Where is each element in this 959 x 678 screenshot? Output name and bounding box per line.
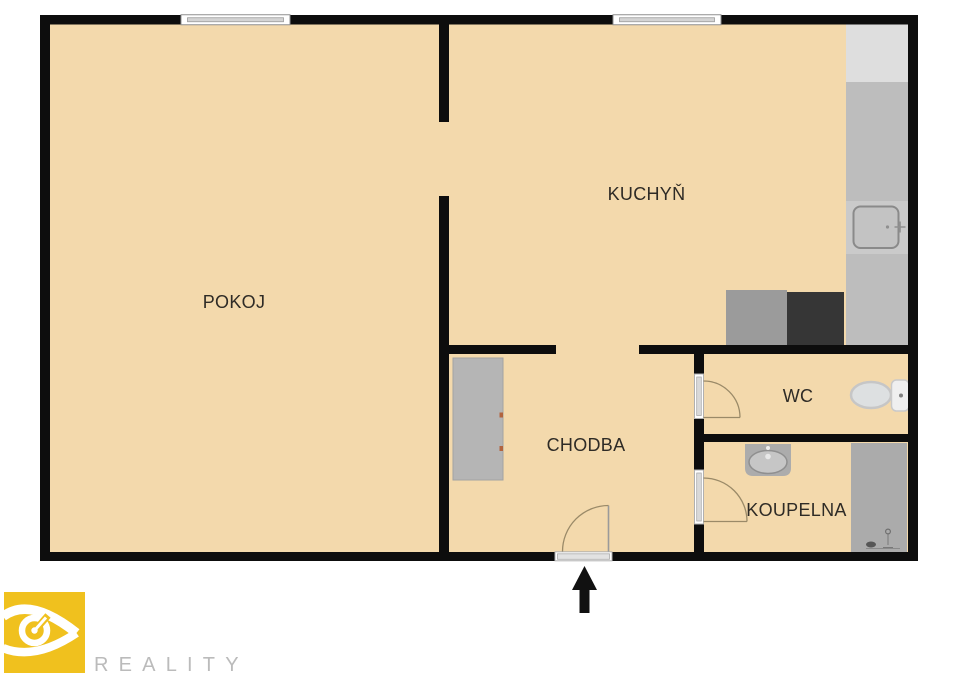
svg-text:CHODBA: CHODBA [547, 435, 626, 455]
svg-text:KUCHYŇ: KUCHYŇ [608, 184, 686, 204]
svg-text:WC: WC [783, 386, 814, 406]
svg-text:POKOJ: POKOJ [203, 292, 266, 312]
svg-text:REALITY: REALITY [94, 654, 249, 676]
svg-text:KOUPELNA: KOUPELNA [746, 500, 846, 520]
